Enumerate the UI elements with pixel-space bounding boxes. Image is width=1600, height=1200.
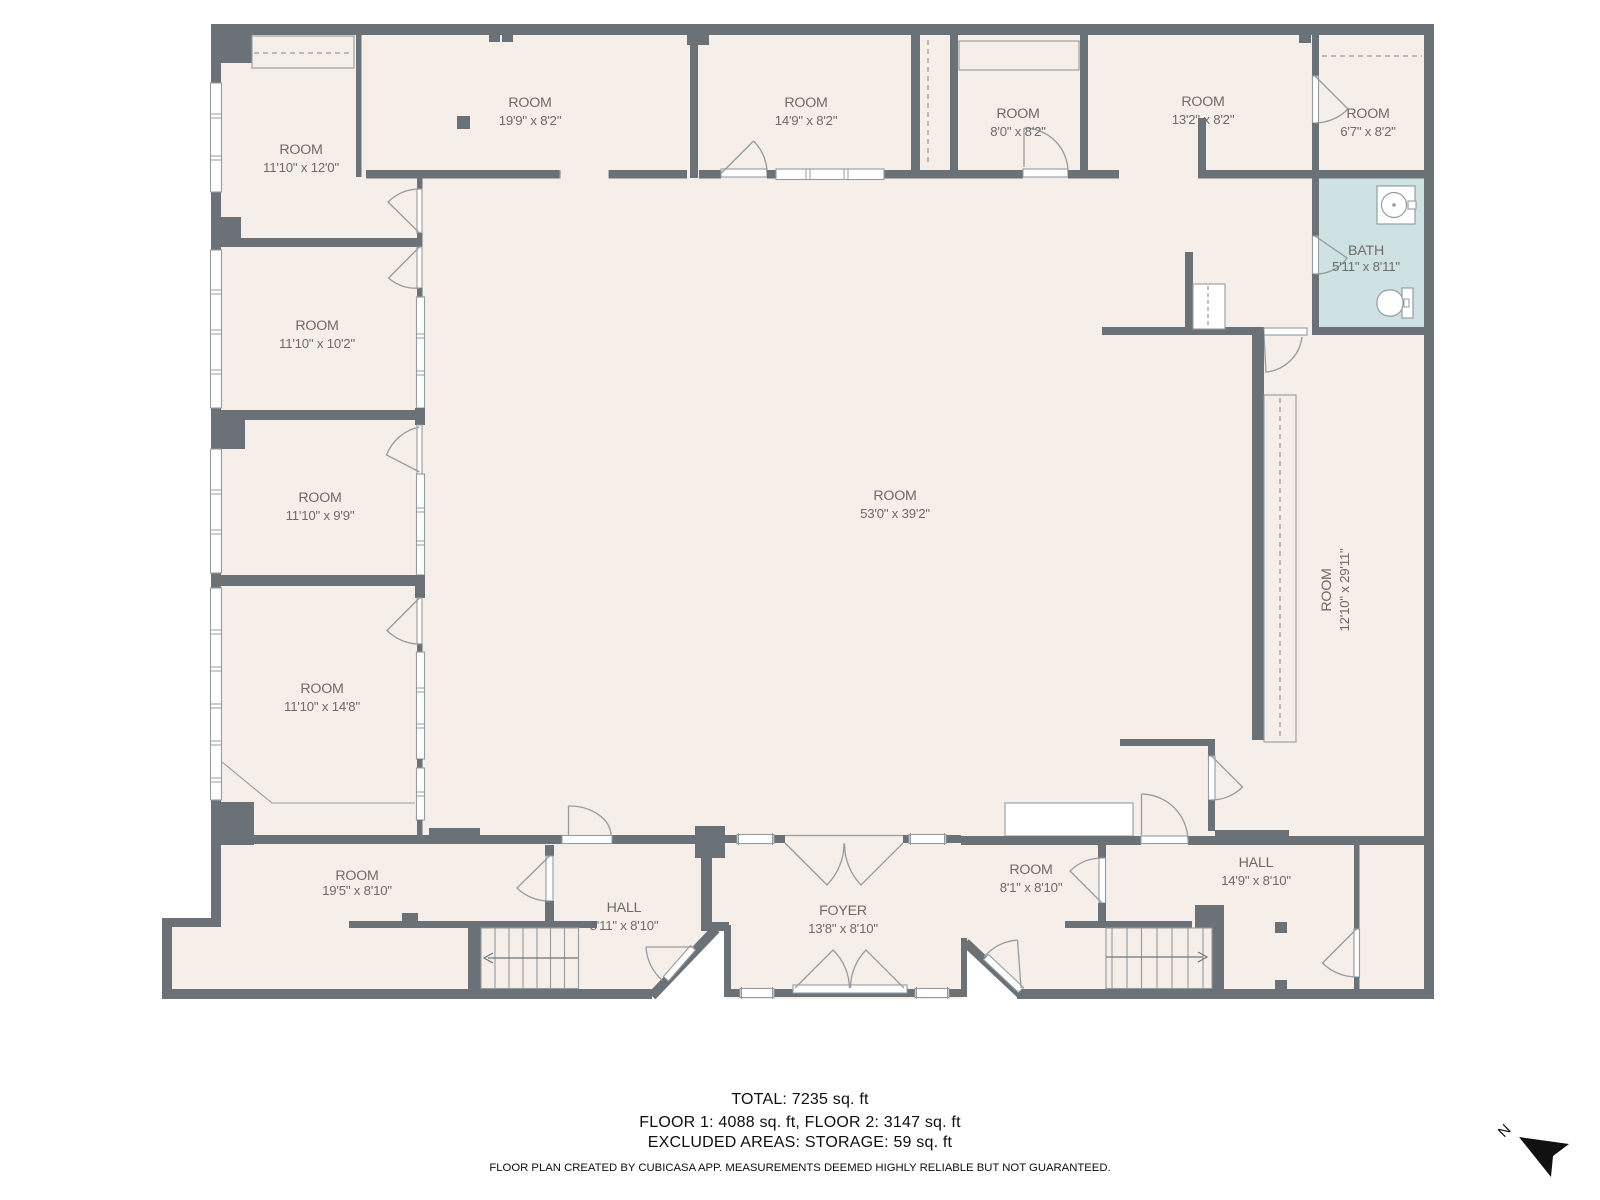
svg-text:ROOM: ROOM (784, 95, 827, 111)
svg-text:13'8" x 8'10": 13'8" x 8'10" (808, 921, 878, 936)
svg-text:ROOM: ROOM (298, 490, 341, 506)
svg-text:8'0" x 8'2": 8'0" x 8'2" (990, 124, 1046, 139)
svg-text:HALL: HALL (1239, 855, 1274, 871)
svg-text:FLOOR PLAN CREATED BY CUBICASA: FLOOR PLAN CREATED BY CUBICASA APP. MEAS… (489, 1162, 1110, 1174)
svg-text:ROOM: ROOM (300, 681, 343, 697)
svg-text:BATH: BATH (1348, 243, 1384, 259)
svg-text:ROOM: ROOM (873, 488, 916, 504)
svg-text:ROOM: ROOM (1346, 106, 1389, 122)
svg-text:11'10" x 9'9": 11'10" x 9'9" (286, 508, 355, 523)
svg-text:ROOM: ROOM (1319, 568, 1335, 611)
svg-text:12'10" x 29'11": 12'10" x 29'11" (1337, 548, 1352, 632)
svg-text:ROOM: ROOM (996, 106, 1039, 122)
svg-text:TOTAL: 7235 sq. ft: TOTAL: 7235 sq. ft (731, 1091, 869, 1108)
svg-text:14'9" x 8'2": 14'9" x 8'2" (775, 113, 838, 128)
svg-text:HALL: HALL (607, 900, 642, 916)
svg-text:14'9" x 8'10": 14'9" x 8'10" (1221, 873, 1291, 888)
svg-text:19'9" x 8'2": 19'9" x 8'2" (499, 113, 562, 128)
svg-text:11'10" x 10'2": 11'10" x 10'2" (279, 336, 355, 351)
svg-text:ROOM: ROOM (1181, 94, 1224, 110)
svg-text:13'2" x 8'2": 13'2" x 8'2" (1172, 112, 1235, 127)
svg-text:5'11" x 8'11": 5'11" x 8'11" (1332, 259, 1400, 274)
svg-text:FOYER: FOYER (819, 903, 867, 919)
svg-text:ROOM: ROOM (279, 142, 322, 158)
svg-text:ROOM: ROOM (335, 868, 378, 884)
svg-text:ROOM: ROOM (295, 318, 338, 334)
svg-text:ROOM: ROOM (508, 95, 551, 111)
svg-text:ROOM: ROOM (1009, 862, 1052, 878)
svg-text:FLOOR 1: 4088 sq. ft, FLOOR 2:: FLOOR 1: 4088 sq. ft, FLOOR 2: 3147 sq. … (639, 1114, 961, 1131)
svg-text:8'1" x 8'10": 8'1" x 8'10" (1000, 880, 1063, 895)
svg-text:8'11" x 8'10": 8'11" x 8'10" (590, 918, 659, 933)
svg-text:19'5" x 8'10": 19'5" x 8'10" (322, 883, 392, 898)
svg-text:6'7" x 8'2": 6'7" x 8'2" (1340, 124, 1396, 139)
svg-text:11'10" x 12'0": 11'10" x 12'0" (263, 160, 339, 175)
svg-text:11'10" x 14'8": 11'10" x 14'8" (284, 699, 360, 714)
svg-text:EXCLUDED AREAS: STORAGE: 59 sq: EXCLUDED AREAS: STORAGE: 59 sq. ft (648, 1134, 953, 1151)
svg-text:53'0" x 39'2": 53'0" x 39'2" (860, 506, 930, 521)
